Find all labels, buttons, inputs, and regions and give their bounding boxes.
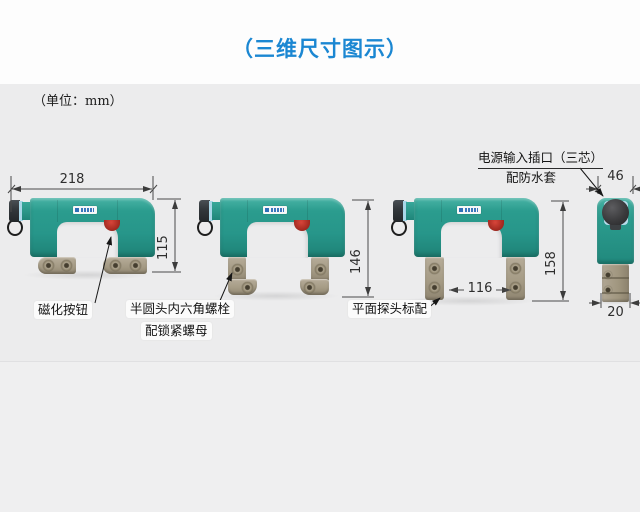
dim-side-width: 46 [597,170,634,184]
hex-bolt-icon [429,282,440,293]
dim-body-height: 115 [157,222,171,274]
brand-logo-icon [75,208,79,212]
brand-text-lines [81,208,94,212]
hex-bolt-icon [43,260,54,271]
panel-seam [57,200,58,222]
foot-ridge [602,292,629,294]
panel-seam [117,200,118,222]
hex-bolt-icon [315,264,326,275]
probe-arm-right [311,257,329,281]
brand-text-lines [465,208,478,212]
flat-probe-left [425,257,444,300]
probe-arm-left [228,257,246,281]
hex-bolt-icon [510,263,521,274]
hex-bolt-icon [242,282,253,293]
hex-bolt-icon [232,264,243,275]
callout-magnetize-button: 磁化按钮 [34,301,92,319]
callout-power-socket-line2: 配防水套 [506,170,556,186]
callout-hex-bolt-line2: 配锁紧螺母 [141,322,212,340]
brand-logo-icon [265,208,269,212]
hex-bolt-icon [61,260,72,271]
hex-bolt-icon [429,263,440,274]
dim-overall-width: 218 [52,173,92,187]
dim-side-foot-width: 20 [597,306,634,320]
dim-pole-spacing: 116 [460,282,500,296]
page-title: （三维尺寸图示） [0,33,640,63]
brand-text-lines [271,208,284,212]
brand-label [263,206,287,214]
probe-pad-left [228,279,257,295]
device-front-view-flat-feet [9,198,155,302]
callout-power-socket-line1: 电源输入插口（三芯） [478,150,603,169]
hex-bolt-icon [304,282,315,293]
callout-hex-bolt-line1: 半圆头内六角螺栓 [126,300,234,318]
probe-pad-right [300,279,329,295]
brand-label [73,206,97,214]
connector-tab [610,225,621,230]
flat-probe-right [506,257,525,300]
device-side-view-body [597,198,634,264]
brand-logo-icon [459,208,463,212]
probe-foot-left [38,257,76,274]
dimension-diagram-page: （三维尺寸图示） （单位：mm） [0,0,640,512]
dim-extended-height: 158 [545,237,559,291]
device-side-view-foot [602,264,629,302]
hex-bolt-icon [130,260,141,271]
callout-flat-probe: 平面探头标配 [348,300,431,318]
panel-seam [501,200,502,222]
bottom-gray-band [0,361,640,512]
panel-seam [247,200,248,222]
unit-note: （单位：mm） [33,90,123,109]
dim-articulated-height: 146 [350,235,364,289]
panel-seam [441,200,442,222]
probe-foot-right [103,257,147,274]
power-socket-icon [602,199,629,226]
hex-bolt-icon [110,260,121,271]
hex-bolt-icon [510,282,521,293]
brand-label [457,206,481,214]
device-front-view-articulated-feet [199,198,345,302]
panel-seam [307,200,308,222]
foot-ridge [602,277,629,279]
